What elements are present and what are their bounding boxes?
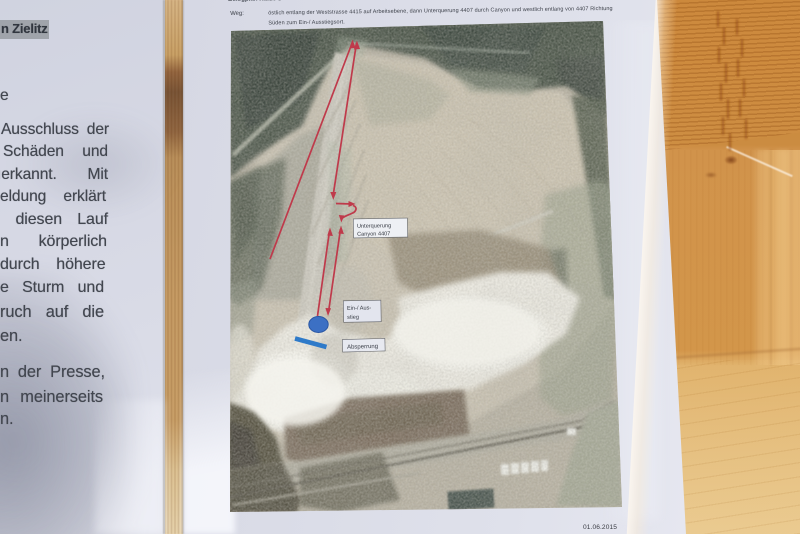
svg-text:Ein-/ Aus-: Ein-/ Aus-	[347, 305, 371, 311]
svg-text:stieg: stieg	[347, 315, 359, 321]
svg-text:Canyon 4407: Canyon 4407	[357, 231, 390, 238]
svg-text:Unterquerung: Unterquerung	[357, 223, 391, 230]
svg-text:Absperrung: Absperrung	[347, 344, 378, 351]
